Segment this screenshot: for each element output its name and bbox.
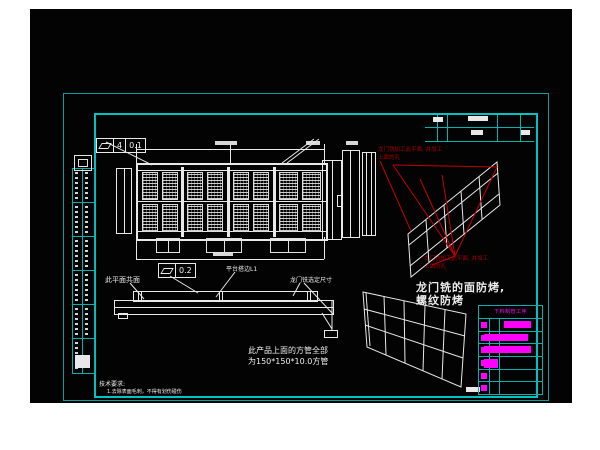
micro-text — [75, 308, 78, 335]
process-row-0 — [479, 319, 542, 332]
gdt-tolerance-value: 0.1 — [125, 139, 145, 152]
note-gantry-dim: 龙门铣选定尺寸 — [290, 275, 332, 284]
process-row-4 — [479, 370, 542, 383]
hatched-panel — [302, 204, 321, 232]
micro-text — [75, 274, 78, 301]
process-row-3 — [479, 357, 542, 370]
process-bar — [504, 321, 531, 328]
section-notch — [337, 195, 343, 207]
strip-cell — [73, 305, 94, 339]
cad-canvas: 4 0.1 0.2 — [30, 9, 572, 403]
micro-text — [85, 172, 88, 199]
micro-text — [521, 130, 530, 135]
signature-block — [75, 355, 90, 368]
frame-detail — [74, 155, 92, 171]
hatched-panel — [253, 204, 269, 232]
red-note-bottom-1: 龙门铣加工此平面, 并加工 — [424, 255, 488, 263]
micro-text — [471, 130, 483, 135]
title-strip-top — [425, 115, 534, 142]
mullion — [227, 167, 230, 237]
red-note-bottom-2: 上面的孔 — [424, 263, 446, 271]
extension-line — [324, 237, 325, 259]
hatched-panel — [233, 172, 249, 200]
hatched-panel — [187, 172, 203, 200]
plan-view — [136, 163, 328, 241]
process-marker — [481, 385, 487, 391]
extension-line — [136, 144, 137, 163]
note-tube-spec-1: 此产品上面的方管全部 — [248, 345, 328, 356]
tech-requirements-title: 技术要求: — [99, 379, 125, 388]
process-row-5 — [479, 382, 542, 394]
hatched-panel — [233, 204, 249, 232]
process-table-rows — [479, 319, 542, 394]
process-row-1 — [479, 332, 542, 345]
note-platform-l1: 平台搭边L1 — [226, 264, 257, 273]
dimension-text — [346, 141, 358, 145]
mullion — [181, 167, 184, 237]
panel-bay — [185, 170, 225, 234]
process-bar — [484, 359, 498, 368]
tech-requirements-line: 1.去除表面毛刺，不得有划伤碰伤 — [107, 388, 182, 395]
panel-bay — [277, 170, 323, 234]
process-table-header: 下料制管工序 — [479, 306, 542, 319]
divider — [447, 115, 448, 141]
flatness-icon — [97, 139, 113, 152]
process-bar — [484, 346, 531, 353]
page: { "colors": { "page_background": "#fffff… — [0, 0, 600, 450]
section-view-inner — [362, 152, 376, 236]
micro-text — [75, 240, 78, 267]
mullion — [273, 167, 276, 237]
micro-text — [85, 206, 88, 233]
hatched-panel — [162, 204, 178, 232]
dimension-text — [215, 141, 237, 145]
micro-text — [433, 117, 443, 122]
panel-bay — [231, 170, 271, 234]
hatched-panel — [253, 172, 269, 200]
gdt-tolerance-value: 0.2 — [175, 264, 195, 277]
plan-left-channel — [116, 168, 132, 234]
hatched-panel — [162, 172, 178, 200]
hatched-panel — [302, 172, 321, 200]
extension-line — [230, 144, 231, 163]
process-marker — [481, 322, 487, 328]
title-strip-left — [72, 168, 95, 374]
micro-text — [468, 116, 488, 121]
hatched-panel — [207, 204, 223, 232]
plan-foot — [206, 238, 242, 253]
hatched-panel — [142, 172, 158, 200]
extension-line — [324, 144, 325, 163]
process-table: 下料制管工序 — [478, 305, 543, 395]
red-note-top-1: 龙门铣加工此平面, 并加工 — [378, 146, 442, 154]
side-view-base-bar — [114, 300, 334, 315]
note-coplanar: 此平面共面 — [105, 275, 140, 285]
hatched-panel — [279, 204, 298, 232]
plan-foot — [156, 238, 180, 253]
dimension-line — [136, 259, 324, 260]
strip-cell — [73, 271, 94, 305]
strip-cell — [73, 237, 94, 271]
side-view-end-box — [324, 330, 338, 338]
hatched-panel — [142, 204, 158, 232]
red-note-top-2: 上面的孔 — [378, 154, 400, 162]
hatched-panel — [207, 172, 223, 200]
hatched-panel — [279, 172, 298, 200]
gdt-frame-flatness-1: 4 0.1 — [96, 138, 146, 153]
gdt-size-value: 4 — [113, 139, 125, 152]
side-view-foot — [118, 313, 128, 319]
process-row-2 — [479, 344, 542, 357]
plan-foot — [270, 238, 306, 253]
note-bake-2: 螺纹防烤 — [416, 292, 464, 308]
divider — [425, 127, 534, 128]
section-view-outer — [342, 150, 360, 238]
hatched-panel — [187, 204, 203, 232]
micro-text — [85, 308, 88, 335]
panel-bay — [140, 170, 180, 234]
extension-line — [136, 237, 137, 259]
note-tube-spec-2: 为150*150*10.0方管 — [248, 356, 328, 367]
micro-text — [85, 240, 88, 267]
micro-text — [75, 206, 78, 233]
flatness-icon — [159, 264, 175, 277]
divider — [520, 115, 521, 141]
gdt-frame-flatness-2: 0.2 — [158, 263, 196, 278]
micro-text — [85, 274, 88, 301]
process-marker — [481, 373, 487, 379]
process-bar — [484, 334, 528, 341]
micro-text — [75, 172, 78, 199]
dimension-text — [306, 141, 320, 145]
strip-cell — [73, 169, 94, 203]
strip-cell — [73, 203, 94, 237]
divider — [497, 115, 498, 141]
